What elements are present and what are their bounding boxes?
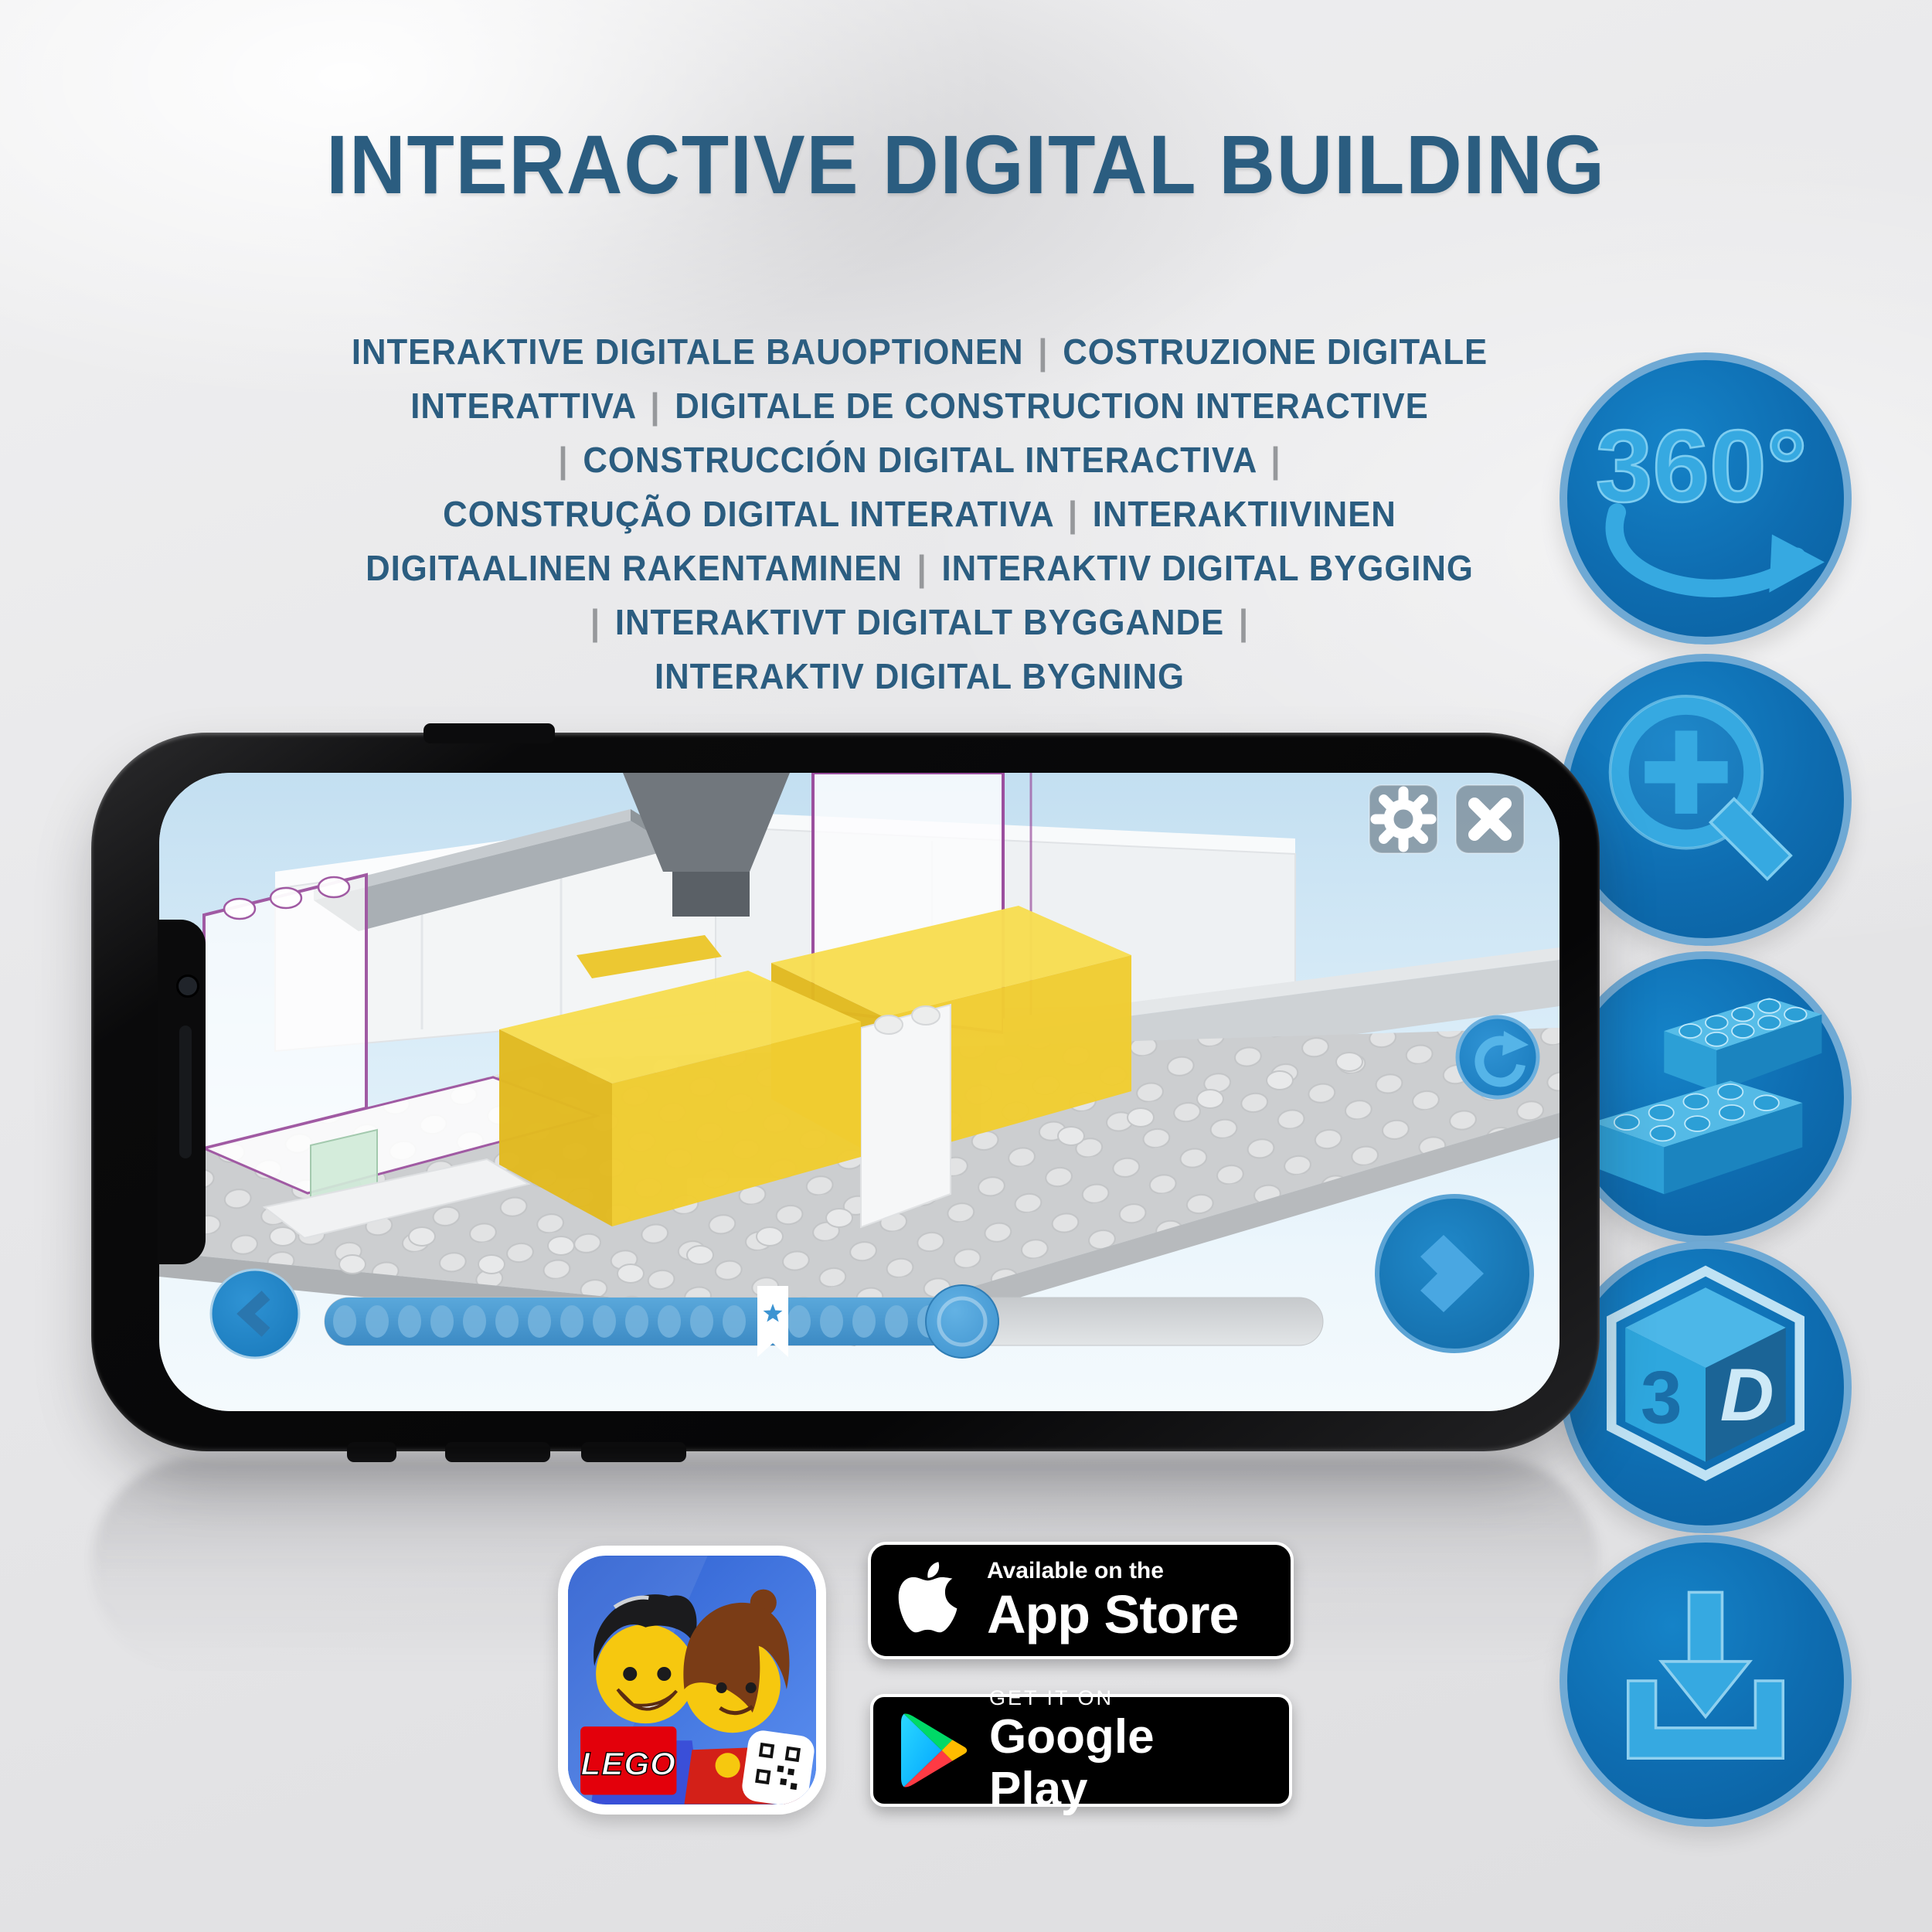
download-icon <box>1567 1543 1844 1819</box>
brick-icon <box>1567 959 1844 1236</box>
google-play-icon <box>896 1712 968 1789</box>
rotate-360-icon: 360° <box>1567 360 1844 637</box>
google-play-name: Google Play <box>989 1711 1266 1816</box>
close-button[interactable] <box>1456 785 1524 853</box>
app-store-badge[interactable]: Available on the App Store <box>868 1542 1294 1659</box>
lego-logo: LEGO <box>580 1726 676 1794</box>
apple-icon <box>897 1560 964 1641</box>
app-store-name: App Store <box>987 1585 1238 1644</box>
lego-minifigures-illustration: LEGO <box>568 1556 816 1804</box>
white-pillar <box>861 1005 951 1227</box>
subtitle-line: | INTERAKTIVT DIGITALT BYGGANDE | <box>46 595 1794 649</box>
feature-3d-badge: 3 D <box>1560 1241 1852 1533</box>
subtitle-line: DIGITAALINEN RAKENTAMINEN | INTERAKTIV D… <box>46 541 1794 595</box>
google-play-prefix: GET IT ON <box>989 1685 1266 1711</box>
feature-brick-badge <box>1560 951 1852 1243</box>
feature-zoom-badge <box>1560 654 1852 946</box>
subtitle-multilanguage: INTERAKTIVE DIGITALE BAUOPTIONEN | COSTR… <box>46 325 1794 703</box>
feature-360-label: 360° <box>1596 410 1808 524</box>
app-screen <box>159 773 1560 1411</box>
phone-mockup <box>91 733 1600 1451</box>
subtitle-line: INTERAKTIV DIGITAL BYGNING <box>46 649 1794 703</box>
lego-app-icon[interactable]: LEGO <box>558 1546 826 1815</box>
page-title: INTERACTIVE DIGITAL BUILDING <box>68 116 1865 213</box>
subtitle-line: CONSTRUÇÃO DIGITAL INTERATIVA | INTERAKT… <box>46 487 1794 541</box>
next-button[interactable] <box>1377 1196 1532 1351</box>
settings-button[interactable] <box>1369 785 1437 853</box>
front-camera <box>176 975 199 998</box>
3d-label-d: D <box>1720 1353 1774 1437</box>
subtitle-line: INTERATTIVA | DIGITALE DE CONSTRUCTION I… <box>46 379 1794 433</box>
google-play-badge[interactable]: GET IT ON Google Play <box>870 1694 1292 1807</box>
building-instructions-scene <box>159 773 1560 1411</box>
3d-cube-icon: 3 D <box>1567 1249 1844 1526</box>
phone-power-button <box>423 723 555 743</box>
slider-thumb[interactable] <box>926 1285 998 1358</box>
lego-logo-text: LEGO <box>581 1745 676 1781</box>
earpiece-speaker <box>179 1026 192 1158</box>
zoom-in-icon <box>1567 662 1844 938</box>
subtitle-line: INTERAKTIVE DIGITALE BAUOPTIONEN | COSTR… <box>46 325 1794 379</box>
3d-label-3: 3 <box>1641 1356 1682 1440</box>
rotate-reset-button[interactable] <box>1458 1017 1538 1097</box>
phone-reflection <box>91 1458 1600 1674</box>
back-button[interactable] <box>211 1270 299 1358</box>
feature-download-badge <box>1560 1535 1852 1827</box>
app-store-prefix: Available on the <box>987 1557 1238 1585</box>
feature-360-badge: 360° <box>1560 352 1852 645</box>
qr-card <box>740 1729 816 1804</box>
subtitle-line: | CONSTRUCCIÓN DIGITAL INTERACTIVA | <box>46 433 1794 487</box>
